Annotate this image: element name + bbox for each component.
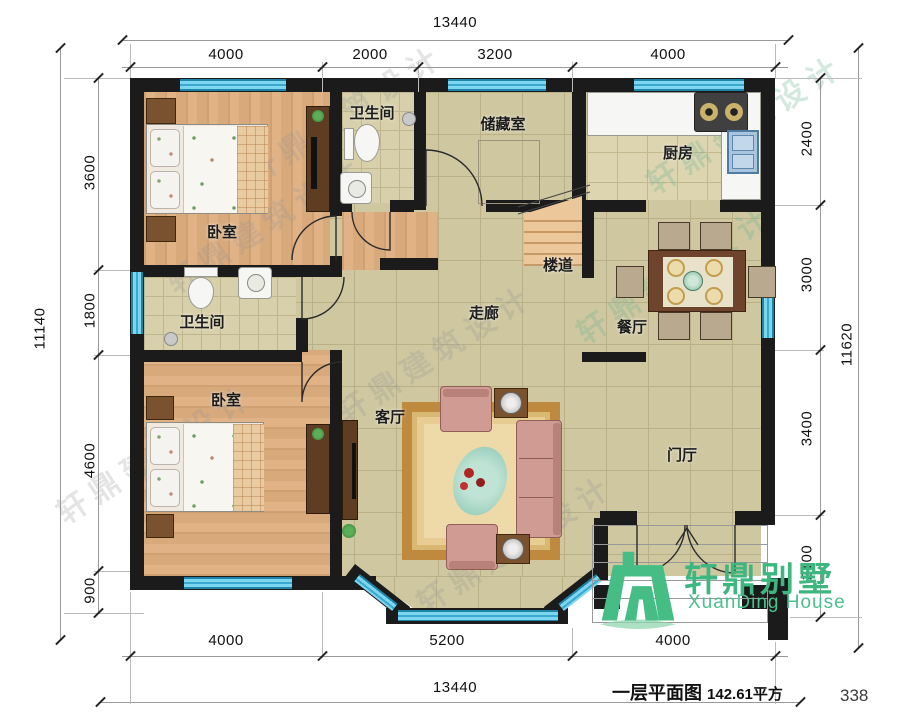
door-arc xyxy=(352,212,390,250)
dim-bottom-seg: 4000 xyxy=(186,632,266,649)
dim-top-seg: 2000 xyxy=(330,46,410,63)
door-arc xyxy=(302,362,342,402)
room-label-foyer: 门厅 xyxy=(637,444,727,465)
xuanding-logo-icon xyxy=(596,540,680,636)
dim-left-seg: 3600 xyxy=(82,138,99,208)
dim-top-total: 13440 xyxy=(415,14,495,31)
plan-title-text: 一层平面图 xyxy=(612,683,702,703)
door-arc xyxy=(292,216,336,260)
dim-left-seg: 4600 xyxy=(82,426,99,496)
extension-line xyxy=(130,592,131,704)
dimension-line xyxy=(122,67,788,68)
dim-bottom-total: 13440 xyxy=(415,679,495,696)
room-label-kitchen: 厨房 xyxy=(633,142,723,163)
logo-gate-inner xyxy=(625,586,659,620)
stair-break-line xyxy=(518,185,590,207)
dimension-line xyxy=(60,48,61,640)
dim-top-seg: 4000 xyxy=(186,46,266,63)
stair-break-line xyxy=(518,192,590,214)
room-label-bedroom1: 卧室 xyxy=(177,221,267,242)
dim-top-seg: 3200 xyxy=(455,46,535,63)
logo-brand-en: XuanDing House xyxy=(688,592,846,614)
room-label-stairs: 楼道 xyxy=(513,254,603,275)
door-arc xyxy=(426,150,482,206)
room-label-bath2: 卫生间 xyxy=(157,311,247,332)
room-label-corridor: 走廊 xyxy=(439,302,529,323)
room-label-dining: 餐厅 xyxy=(587,316,677,337)
dim-left-total: 11140 xyxy=(32,294,49,364)
room-label-bath1: 卫生间 xyxy=(327,102,417,123)
extension-line xyxy=(322,592,323,658)
extension-line xyxy=(790,617,862,618)
room-label-storage: 储藏室 xyxy=(458,113,548,134)
dimension-line xyxy=(122,40,788,41)
dim-top-seg: 4000 xyxy=(628,46,708,63)
door-arc xyxy=(302,277,344,319)
dimension-line xyxy=(122,656,788,657)
plan-area: 142.61平方 xyxy=(707,686,783,703)
dim-bottom-seg: 5200 xyxy=(407,632,487,649)
extension-line xyxy=(775,44,776,78)
room-label-bedroom2: 卧室 xyxy=(181,389,271,410)
dim-right-seg: 3400 xyxy=(799,394,816,464)
page-number: 338 xyxy=(840,686,868,706)
dim-left-seg: 1800 xyxy=(82,276,99,346)
dimension-line xyxy=(858,48,859,648)
extension-line xyxy=(64,613,144,614)
dim-right-total: 11620 xyxy=(839,310,856,380)
logo-swoosh xyxy=(600,620,676,630)
dim-right-seg: 3000 xyxy=(799,240,816,310)
floor-plan-page: 轩鼎建筑设计 轩鼎建筑设计 轩鼎建筑设计 轩鼎建筑设计 轩鼎建筑设计 轩鼎建筑设… xyxy=(0,0,900,713)
room-label-living: 客厅 xyxy=(345,406,435,427)
plan-title: 一层平面图 142.61平方 xyxy=(612,679,783,705)
dim-left-seg: 900 xyxy=(82,556,99,626)
extension-line xyxy=(130,44,131,78)
dim-right-seg: 2400 xyxy=(799,104,816,174)
